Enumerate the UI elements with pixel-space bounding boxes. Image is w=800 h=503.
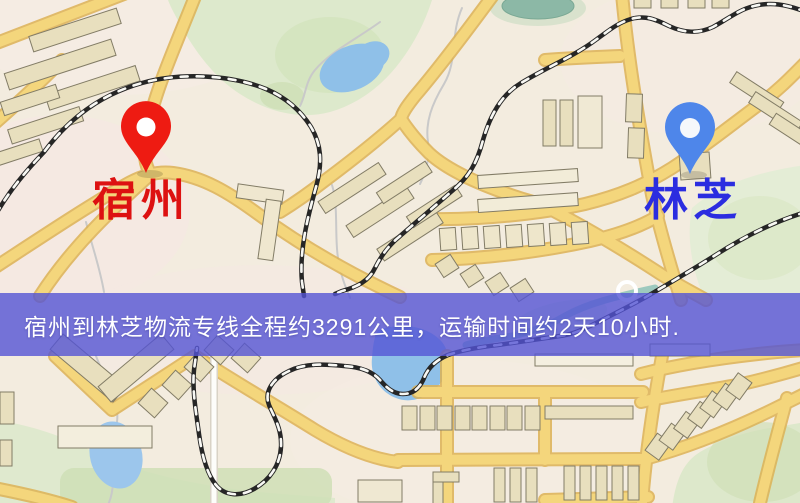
map-canvas[interactable] (0, 0, 800, 503)
route-info-banner: 宿州到林芝物流专线全程约3291公里，运输时间约2天10小时. (0, 293, 800, 356)
logistics-route-map[interactable]: 宿州 林芝 宿州到林芝物流专线全程约3291公里，运输时间约2天10小时. (0, 0, 800, 503)
origin-pin-hole (137, 118, 156, 137)
destination-pin-hole (680, 118, 700, 138)
route-info-text: 宿州到林芝物流专线全程约3291公里，运输时间约2天10小时. (0, 308, 680, 342)
